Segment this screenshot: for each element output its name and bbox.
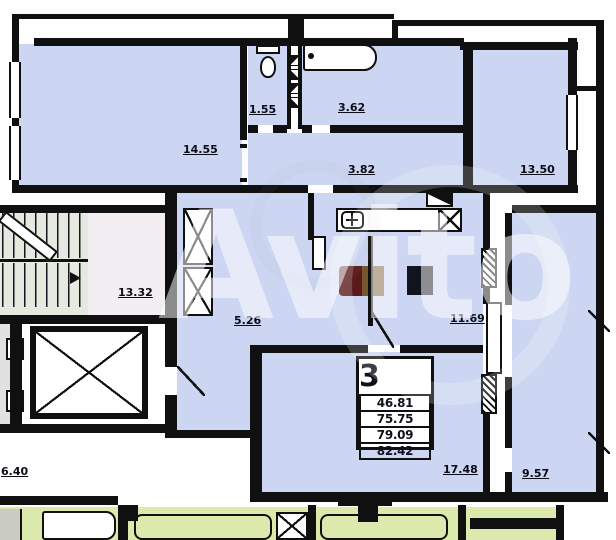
toilet-bowl-icon	[260, 56, 276, 78]
furniture-brown	[362, 266, 384, 296]
area-info-table: 3 46.81 75.75 79.09 82.42	[356, 356, 434, 450]
wall-segment	[470, 518, 558, 529]
area-label-wc: 1.55	[249, 104, 276, 116]
wall-segment	[0, 424, 165, 433]
door-leaf	[312, 236, 326, 270]
neighbor-bathtub-icon	[42, 511, 116, 540]
door-jamb	[240, 144, 247, 148]
wall-segment	[298, 42, 302, 129]
wall-segment	[250, 345, 368, 353]
wall-segment	[165, 193, 177, 367]
area-label-neighbor: 6.40	[1, 466, 28, 478]
wall-segment	[577, 86, 598, 91]
wall-segment	[240, 38, 247, 140]
area-label-loggia: 9.57	[522, 468, 549, 480]
wall-segment	[0, 205, 165, 213]
neighbor-fixture-outline	[134, 514, 272, 540]
wall-segment	[287, 42, 291, 129]
wall-segment	[12, 14, 394, 19]
window	[9, 126, 21, 180]
vent-shaft-box	[183, 267, 213, 316]
area-label-bathroom: 3.62	[338, 102, 365, 114]
area-label-kitchen-living: 11.69	[450, 313, 485, 325]
wall-segment	[302, 125, 312, 133]
wall-segment	[273, 125, 287, 133]
wall-segment	[392, 20, 604, 26]
furniture-red	[339, 266, 362, 296]
wall-segment	[12, 14, 19, 62]
neighbor-vent-box	[276, 512, 308, 540]
neighbor-fixture	[0, 509, 22, 540]
wall-segment	[568, 150, 577, 193]
wall-segment	[34, 38, 464, 46]
door-swing-line	[368, 306, 394, 348]
wall-segment	[118, 505, 128, 540]
window-break-mark	[588, 310, 610, 332]
wall-segment	[338, 497, 392, 506]
wall-segment	[333, 185, 578, 193]
wall-segment	[460, 42, 578, 50]
area-label-hallway: 5.26	[234, 315, 261, 327]
area-label-corridor: 3.82	[348, 164, 375, 176]
vent-wedge-icon	[426, 192, 453, 207]
area-label-room-top-right: 13.50	[520, 164, 555, 176]
wall-segment	[505, 472, 512, 492]
wall-segment	[0, 496, 118, 505]
door-jamb	[240, 178, 247, 182]
bathtub-icon	[303, 44, 377, 71]
wall-segment	[12, 185, 252, 193]
window	[566, 95, 578, 150]
furniture-dark	[407, 266, 433, 295]
wall-segment	[250, 492, 608, 502]
bathtub-faucet-icon	[308, 53, 314, 59]
elevator-wall-bar	[10, 324, 22, 424]
wall-segment	[308, 193, 314, 240]
wall-segment	[252, 185, 308, 193]
neighbor-fixture-outline	[320, 514, 448, 540]
window-break-mark	[588, 432, 610, 454]
wall-segment	[0, 315, 165, 324]
wall-segment	[308, 505, 316, 540]
toilet-tank-icon	[256, 45, 280, 54]
vent-shaft-box	[183, 208, 213, 265]
stove-icon	[438, 208, 462, 232]
wall-segment	[483, 412, 490, 492]
wall-segment	[358, 506, 378, 522]
area-label-room-bottom: 17.48	[443, 464, 478, 476]
elevator-cabin	[30, 326, 148, 419]
wall-segment	[568, 38, 577, 95]
corridor-floor	[248, 133, 463, 185]
loggia-floor	[512, 213, 596, 492]
wall-segment	[512, 205, 596, 213]
wall-segment	[248, 125, 258, 133]
wall-segment	[505, 377, 512, 448]
wall-segment	[165, 430, 262, 438]
full-area-value: 82.42	[359, 442, 431, 460]
room-top-left-floor	[19, 44, 242, 185]
wall-segment	[400, 345, 483, 353]
window	[9, 62, 21, 118]
wall-segment	[463, 42, 473, 185]
wall-segment	[483, 193, 490, 250]
area-label-stairwell: 13.32	[118, 287, 153, 299]
apartment-floor-plan: 14.55 1.55 3.62 3.82 13.50 13.32 5.26 11…	[0, 0, 616, 540]
wall-segment	[330, 125, 463, 133]
area-label-room-top-left: 14.55	[183, 144, 218, 156]
wall-segment	[458, 505, 466, 540]
wall-segment	[250, 352, 262, 500]
wall-segment	[556, 505, 564, 540]
wall-segment	[288, 14, 304, 40]
wall-segment	[505, 213, 512, 305]
sink-cross-icon	[346, 219, 358, 221]
stair-mid-line	[0, 259, 88, 262]
chimney-mark	[411, 186, 422, 193]
rooms-count: 3	[359, 359, 380, 394]
balcony-door-hatch	[481, 248, 497, 288]
stair-flight-lower	[2, 263, 88, 307]
balcony-door-hatch	[481, 374, 497, 414]
balcony-door-leaf	[486, 302, 502, 374]
area-values: 46.81 75.75 79.09 82.42	[359, 394, 431, 460]
stair-direction-arrow-icon	[70, 272, 81, 284]
entry-door-leaf	[177, 366, 205, 396]
wall-segment	[12, 118, 19, 126]
